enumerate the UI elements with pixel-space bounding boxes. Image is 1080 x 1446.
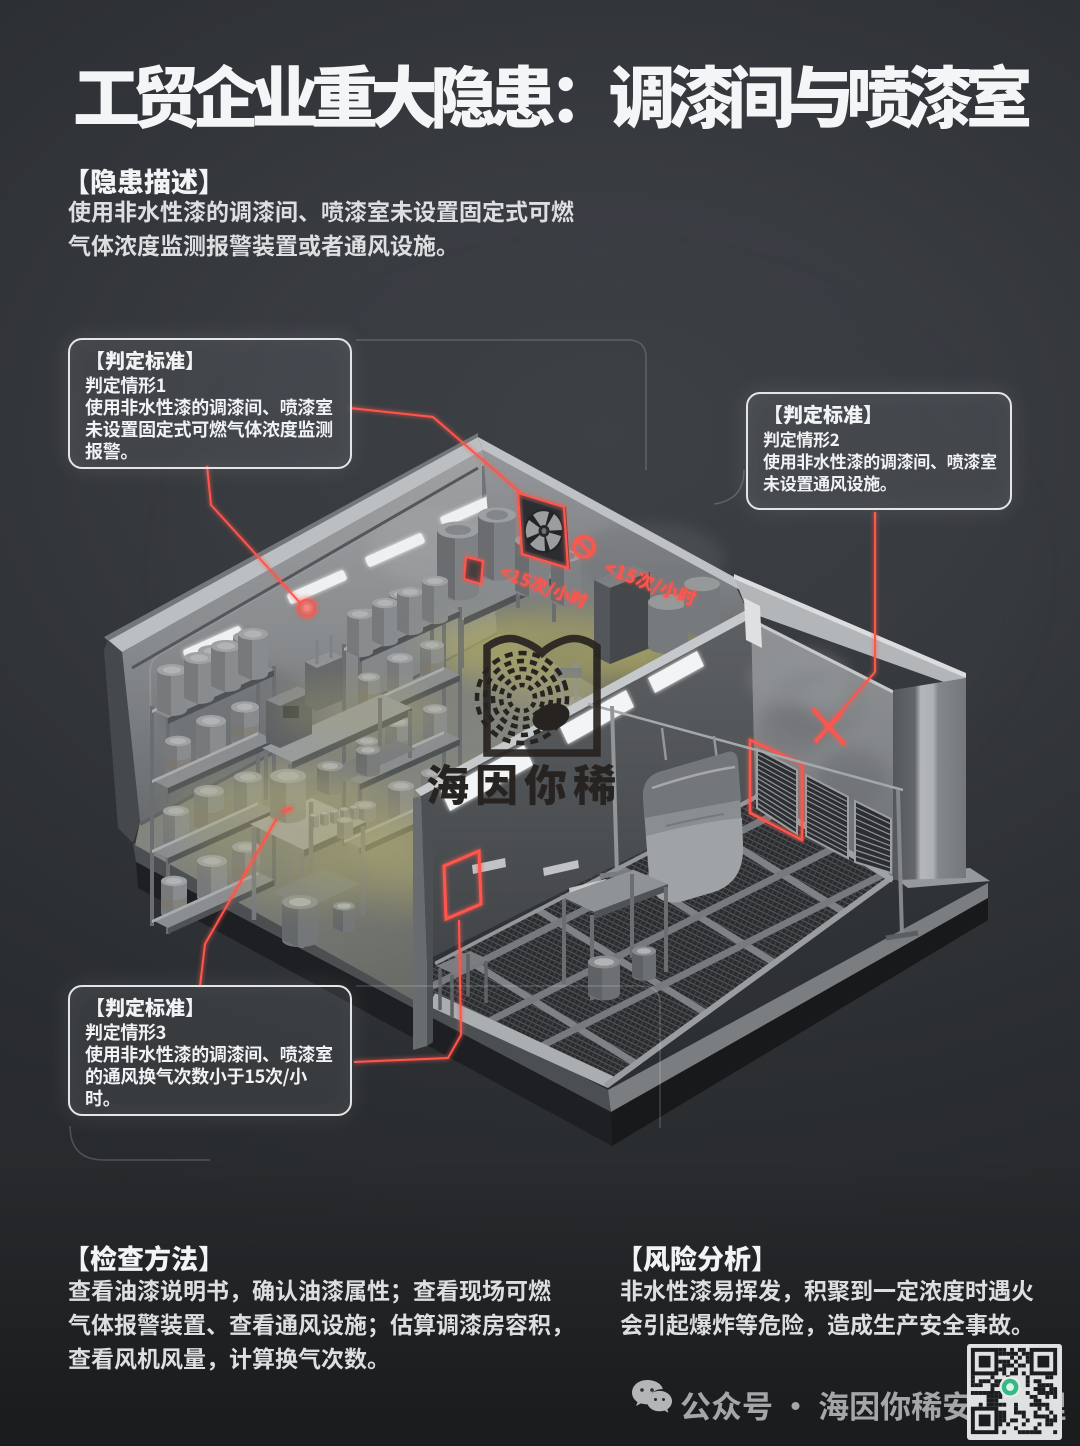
svg-text:海因你稀: 海因你稀 [426,752,622,814]
